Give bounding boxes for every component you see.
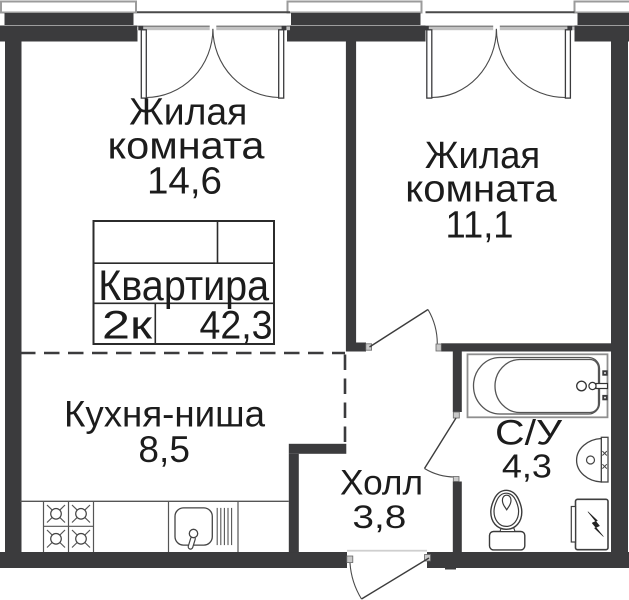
svg-text:42,3: 42,3 [200,304,273,348]
svg-text:С/У: С/У [495,413,563,453]
svg-text:11,1: 11,1 [446,204,514,246]
svg-text:3,8: 3,8 [352,499,406,535]
svg-text:Холл: Холл [340,462,423,502]
svg-text:2к: 2к [102,304,153,348]
svg-text:14,6: 14,6 [147,161,222,203]
svg-text:4,3: 4,3 [502,448,552,485]
svg-text:8,5: 8,5 [138,429,190,470]
